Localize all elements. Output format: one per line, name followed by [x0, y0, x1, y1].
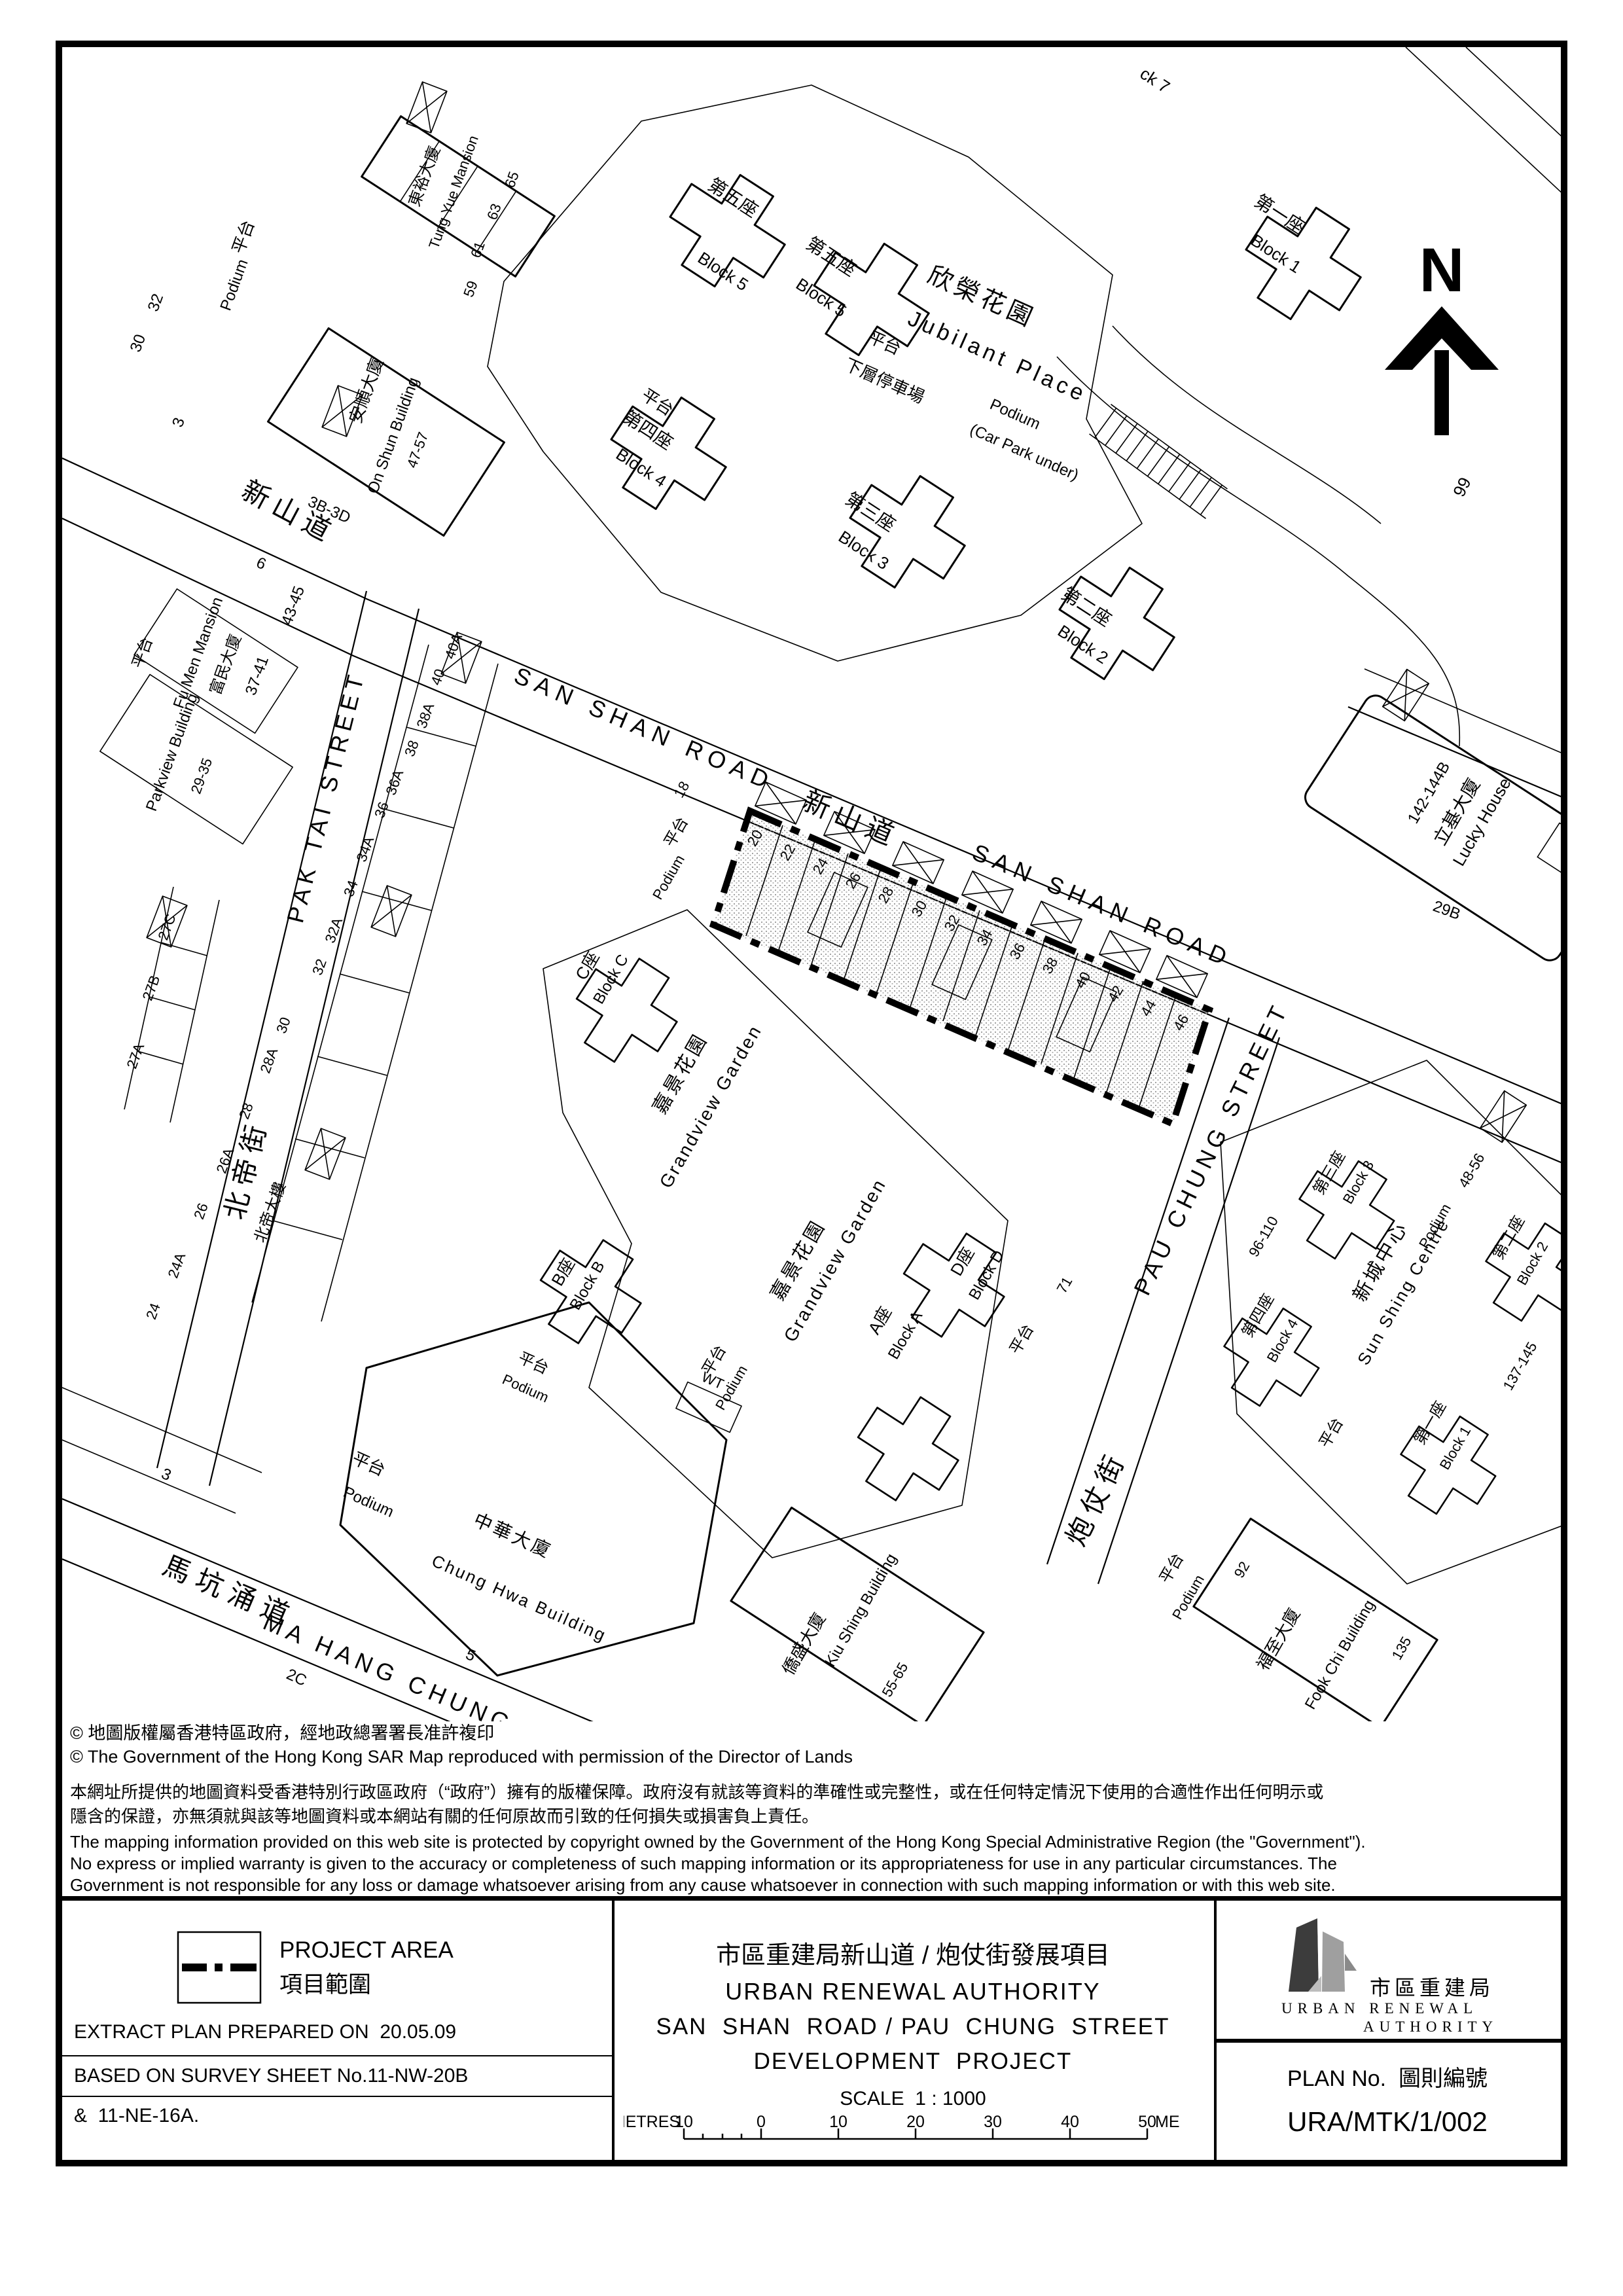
block-label: 第四座	[1239, 1291, 1277, 1340]
building-label: Kiu Shing Building	[821, 1551, 901, 1670]
block-label: Block 2	[1514, 1239, 1552, 1288]
street-number: 24	[143, 1301, 164, 1322]
podium-label: 平台	[1007, 1321, 1037, 1357]
notes-row-rule	[62, 2096, 612, 2097]
disclaimer-line: No express or implied warranty is given …	[70, 1853, 1366, 1874]
road-linework	[62, 458, 1561, 1721]
street-number: 30	[273, 1015, 294, 1036]
block-label: A座	[864, 1303, 895, 1338]
block-label: 第三座	[842, 488, 899, 535]
street-number: 27C	[154, 912, 179, 942]
street-number: 28A	[257, 1045, 281, 1075]
street-number: 34	[340, 878, 361, 899]
scale-unit-left: METRES	[624, 2113, 680, 2131]
street-number: 65	[501, 170, 522, 190]
street-number: 55-65	[879, 1660, 912, 1700]
building-label: 北帝大樓	[251, 1180, 289, 1245]
disclaimer-line: Government is not responsible for any lo…	[70, 1874, 1366, 1896]
notes-row-rule	[62, 2055, 612, 2056]
street-number: 32A	[322, 915, 346, 945]
stairs-hatch	[1090, 404, 1228, 519]
street-number: 137-145	[1499, 1339, 1540, 1393]
podium-label: Podium	[217, 257, 251, 314]
street-number: 99	[1449, 474, 1475, 499]
street-number: 48-56	[1455, 1151, 1488, 1191]
street-number: 37-41	[242, 654, 272, 698]
copyright-en: © The Government of the Hong Kong SAR Ma…	[70, 1745, 853, 1768]
scale-tick-label: 40	[1061, 2113, 1079, 2131]
podium-label: 平台	[865, 327, 904, 359]
podium-label: 平台	[1316, 1415, 1347, 1451]
street-number: 27A	[124, 1041, 148, 1071]
disclaimer-line: The mapping information provided on this…	[70, 1831, 1366, 1853]
street-number: 43-45	[278, 584, 308, 628]
building-label: 東裕大廈	[406, 144, 444, 209]
ura-logo-en-1: URBAN RENEWAL	[1281, 2000, 1478, 2017]
podium-label: 平台	[1156, 1551, 1187, 1587]
street-number: 135	[1388, 1634, 1414, 1662]
building-label: 僑盛大廈	[778, 1609, 829, 1678]
north-label: N	[1419, 236, 1465, 305]
street-number: 36	[371, 800, 392, 821]
block-label: D座	[946, 1244, 978, 1280]
block-label: Block 1	[1436, 1424, 1474, 1473]
ura-logo-en-2: AUTHORITY	[1363, 2018, 1498, 2036]
scale-tick-label: 50	[1138, 2113, 1156, 2131]
scale-tick-label: 10	[675, 2113, 693, 2131]
building-label: 中華大廈	[471, 1509, 556, 1562]
extract-note-2: BASED ON SURVEY SHEET No.11-NW-20B	[74, 2065, 468, 2087]
block-label: C座	[571, 948, 603, 984]
plan-no-divider	[1214, 2039, 1561, 2043]
scale-unit-right: METRES	[1155, 2113, 1180, 2131]
building-label: 福至大廈	[1253, 1605, 1304, 1674]
street-number: 29-35	[188, 756, 216, 796]
disclaimer-en: The mapping information provided on this…	[70, 1831, 1366, 1896]
street-number: 24A	[165, 1250, 189, 1280]
block-label: Block 5	[694, 248, 752, 295]
sheet-border: N 新山道 SAN SHAN ROAD 新山道 SAN SHAN ROAD PA…	[56, 41, 1567, 2166]
plan-no-label: PLAN No. 圖則編號	[1214, 2060, 1561, 2092]
podium-label: 平台	[349, 1448, 389, 1480]
podium-label: 平台	[228, 217, 259, 256]
street-number: 40	[427, 667, 448, 688]
scale-label: SCALE 1 : 1000	[612, 2088, 1214, 2110]
podium-label: 平台	[129, 635, 156, 670]
street-number: 32	[309, 957, 330, 978]
plan-sheet: N 新山道 SAN SHAN ROAD 新山道 SAN SHAN ROAD PA…	[0, 0, 1623, 2296]
disclaimer-line: 本網址所提供的地圖資料受香港特別行政區政府（“政府”）擁有的版權保障。政府沒有就…	[70, 1780, 1323, 1804]
podium-label: Podium	[987, 395, 1043, 433]
street-number: 29B	[1431, 897, 1463, 924]
block-label: Block 5	[793, 274, 850, 321]
authority-title: URBAN RENEWAL AUTHORITY	[612, 1978, 1214, 2005]
street-number: 6	[253, 554, 268, 573]
building-label: 富民大廈	[207, 632, 245, 697]
podium-label: (Car Park under)	[967, 420, 1081, 484]
building-label: Fook Chi Building	[1302, 1597, 1378, 1712]
extract-note-1: EXTRACT PLAN PREPARED ON 20.05.09	[74, 2021, 456, 2043]
street-number: 36A	[383, 767, 407, 797]
street-number: 59	[460, 279, 481, 300]
street-number: 71	[1054, 1274, 1076, 1296]
block-label: 第二座	[1489, 1213, 1528, 1263]
north-arrow: N	[1385, 236, 1499, 435]
scale-tick-label: 10	[829, 2113, 847, 2131]
scale-bar: METRES 10 0 10 20 30 40 50 METRES	[624, 2109, 1180, 2148]
block-label: Block 4	[613, 444, 670, 492]
scale-tick-label: 30	[984, 2113, 1002, 2131]
estate-label: Jubilant Place	[904, 306, 1092, 407]
street-number: 30	[127, 332, 150, 354]
street-number: 28	[236, 1101, 257, 1122]
street-number: 47-57	[404, 430, 432, 470]
podium-label: 平台	[516, 1349, 552, 1378]
title-block-top-rule	[62, 1896, 1561, 1901]
building-label: Parkview Building	[143, 691, 202, 814]
street-number: 38A	[414, 700, 438, 730]
extract-note-3: & 11-NE-16A.	[74, 2105, 199, 2127]
block-label: 第五座	[803, 233, 860, 280]
plan-no-value: URA/MTK/1/002	[1214, 2106, 1561, 2138]
street-number: 96-110	[1245, 1213, 1281, 1259]
project-title-en-2: DEVELOPMENT PROJECT	[612, 2049, 1214, 2075]
street-number: 38	[401, 738, 422, 759]
street-number: 92	[1231, 1558, 1253, 1581]
scale-tick-label: 20	[906, 2113, 925, 2131]
street-label: SAN SHAN ROAD	[510, 662, 779, 796]
project-title-en-1: SAN SHAN ROAD / PAU CHUNG STREET	[612, 2014, 1214, 2040]
map-copyright: © 地圖版權屬香港特區政府，經地政總署署長准許複印 © The Governme…	[70, 1721, 853, 1768]
block-label: ck 7	[1137, 63, 1173, 97]
block-label: Block 4	[1264, 1316, 1302, 1365]
ura-logo-zh: 市區重建局	[1370, 1971, 1494, 2001]
street-number: 63	[484, 202, 505, 223]
disclaimer-zh: 本網址所提供的地圖資料受香港特別行政區政府（“政府”）擁有的版權保障。政府沒有就…	[70, 1780, 1323, 1829]
disclaimer-line: 隱含的保證，亦無須就與該等地圖資料或本網站有關的任何原故而引致的任何損失或損害負…	[70, 1804, 1323, 1829]
street-number: 3	[169, 416, 188, 430]
crossed-structures	[147, 82, 1526, 1179]
legend-label-en: PROJECT AREA	[279, 1937, 454, 1964]
street-label: 炮仗街	[1060, 1445, 1133, 1551]
street-number: 27B	[139, 973, 164, 1003]
legend-label-zh: 項目範圍	[279, 1966, 371, 2000]
street-number: 2C	[284, 1666, 310, 1690]
scale-tick-label: 0	[757, 2113, 766, 2131]
building-label: Chung Hwa Building	[429, 1551, 610, 1645]
street-number: 26	[190, 1201, 211, 1222]
project-title-zh: 市區重建局新山道 / 炮仗街發展項目	[612, 1935, 1214, 1971]
street-number: 34A	[353, 834, 378, 864]
copyright-zh: © 地圖版權屬香港特區政府，經地政總署署長准許複印	[70, 1721, 853, 1745]
map-canvas: N 新山道 SAN SHAN ROAD 新山道 SAN SHAN ROAD PA…	[62, 47, 1561, 1721]
podium-label: Podium	[649, 852, 688, 903]
street-number: 32	[145, 291, 168, 314]
podium-label: 下層停車場	[842, 355, 927, 407]
podium-label: Podium	[340, 1483, 396, 1521]
project-area-legend-symbol	[177, 1931, 262, 2004]
street-number: 3	[158, 1465, 173, 1484]
podium-label: 平台	[661, 814, 692, 850]
ura-logo-icon	[1279, 1914, 1368, 1996]
